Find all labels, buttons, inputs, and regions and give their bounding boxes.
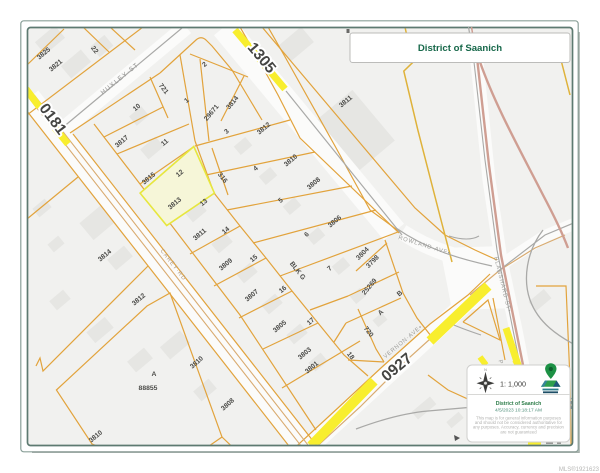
svg-text:1: 1,000: 1: 1,000	[500, 380, 526, 389]
svg-text:A: A	[152, 371, 157, 378]
svg-text:MLS®1921623: MLS®1921623	[559, 466, 600, 473]
svg-text:4/5/2023 10:18:17 AM: 4/5/2023 10:18:17 AM	[495, 408, 542, 414]
svg-text:88855: 88855	[139, 385, 158, 392]
svg-text:N: N	[484, 368, 487, 372]
svg-text:District of Saanich: District of Saanich	[418, 43, 502, 54]
svg-text:District of Saanich: District of Saanich	[496, 401, 542, 407]
svg-text:are not guaranteed: are not guaranteed	[500, 429, 537, 434]
